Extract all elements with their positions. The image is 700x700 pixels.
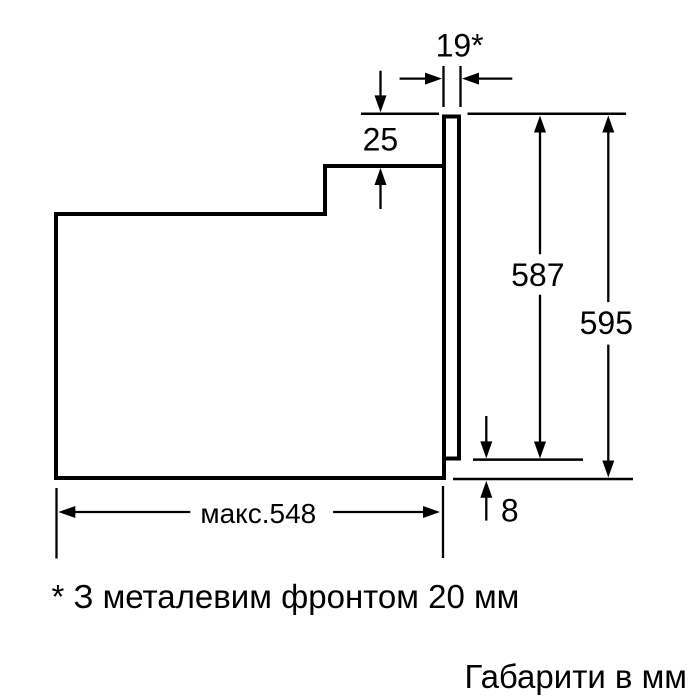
svg-text:25: 25 [363,122,399,158]
svg-text:8: 8 [501,492,519,528]
svg-text:595: 595 [580,305,633,341]
svg-text:макс.548: макс.548 [200,498,316,529]
svg-text:19*: 19* [436,28,484,64]
svg-text:587: 587 [511,257,564,293]
svg-text:* З металевим фронтом 20 мм: * З металевим фронтом 20 мм [52,578,520,615]
svg-text:Габарити в мм: Габарити в мм [465,658,687,695]
